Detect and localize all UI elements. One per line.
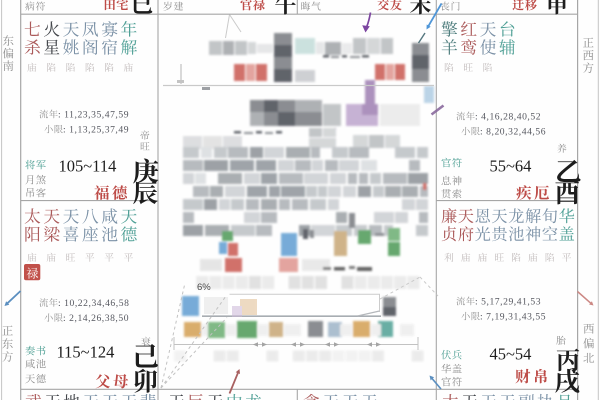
svg-text:: 1,13,25,37,49: : 1,13,25,37,49 [63,125,129,136]
svg-text:: 11,23,35,47,59: : 11,23,35,47,59 [58,110,129,121]
svg-text:105~114: 105~114 [59,157,117,176]
svg-text:6%: 6% [197,282,211,293]
svg-text:: 7,19,31,43,55: : 7,19,31,43,55 [480,312,546,323]
svg-text:: 5,17,29,41,53: : 5,17,29,41,53 [475,297,541,308]
svg-text:55~64: 55~64 [490,157,532,176]
svg-text:: 8,20,32,44,56: : 8,20,32,44,56 [480,127,546,138]
svg-text:: 10,22,34,46,58: : 10,22,34,46,58 [58,298,129,309]
svg-text:: 2,14,26,38,50: : 2,14,26,38,50 [63,313,129,324]
svg-text:: 4,16,28,40,52: : 4,16,28,40,52 [475,112,541,123]
svg-text:115~124: 115~124 [57,343,115,362]
svg-text:45~54: 45~54 [490,345,532,364]
